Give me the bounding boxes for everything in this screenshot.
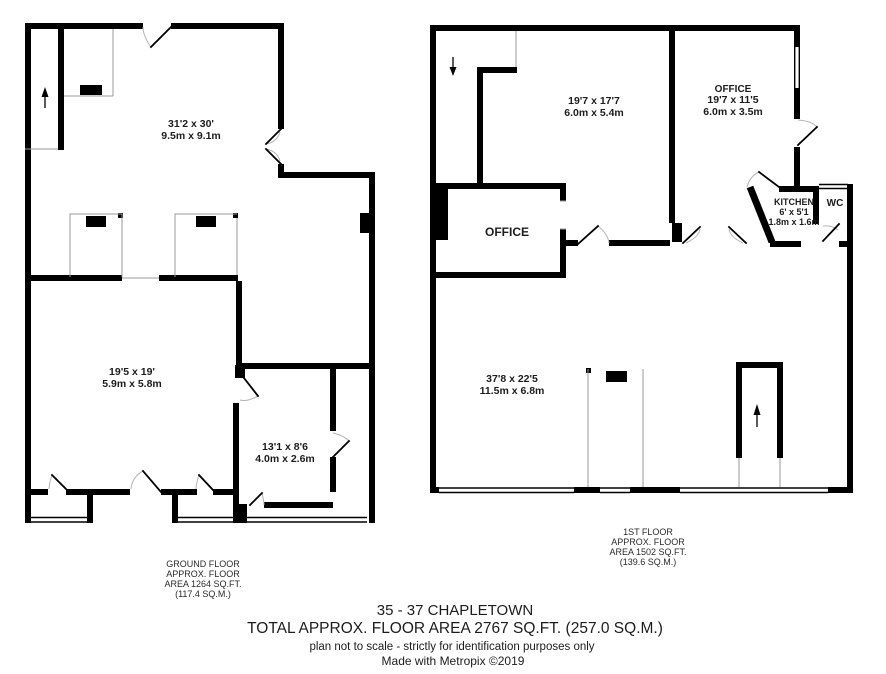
ground-floor-plan [25,23,375,523]
ground-floor-thin-lines [25,29,237,278]
room-dims-ft: 19'7 x 11'5 [703,95,763,107]
room-label-first-office-right: OFFICE 19'7 x 11'5 6.0m x 3.5m [703,84,763,118]
room-label-wc: WC [827,198,844,209]
ground-floor-walls [25,23,375,523]
caption-line: 1ST FLOOR [609,527,686,537]
room-label-kitchen: KITCHEN 6' x 5'1 1.8m x 1.6m [768,197,819,227]
ground-floor-fixtures [80,85,216,227]
caption-line: (117.4 SQ.M.) [164,589,241,599]
room-dims-ft: 31'2 x 30' [161,119,221,131]
first-floor-walls [430,25,853,493]
room-name: WC [827,198,844,209]
room-dims-m: 9.5m x 9.1m [161,131,221,143]
stairwell-up-arrow-icon [754,404,761,427]
room-dims-m: 4.0m x 2.6m [255,454,315,466]
room-dims-m: 6.0m x 3.5m [703,107,763,119]
room-label-first-front: 19'7 x 17'7 6.0m x 5.4m [564,96,624,119]
stairs-down-arrow-icon [450,57,457,76]
room-dims-m: 1.8m x 1.6m [768,217,819,227]
first-floor-caption: 1ST FLOOR APPROX. FLOOR AREA 1502 SQ.FT.… [609,527,686,567]
ground-floor-door-leaves [52,26,349,505]
room-label-open-plan: 37'8 x 22'5 11.5m x 6.8m [480,374,545,397]
ground-floor-caption: GROUND FLOOR APPROX. FLOOR AREA 1264 SQ.… [164,559,241,599]
room-label-ground-main: 31'2 x 30' 9.5m x 9.1m [161,119,221,142]
room-dims-ft: 19'7 x 17'7 [564,96,624,108]
room-dims-m: 5.9m x 5.8m [102,379,162,391]
room-dims-ft: 19'5 x 19' [102,367,162,379]
credit-text: Made with Metropix ©2019 [382,655,525,668]
room-name: OFFICE [485,226,529,239]
room-name: KITCHEN [768,197,819,207]
room-dims-ft: 6' x 5'1 [768,207,819,217]
room-label-ground-side: 13'1 x 8'6 4.0m x 2.6m [255,442,315,465]
room-dims-ft: 13'1 x 8'6 [255,442,315,454]
ground-floor-door-arcs [49,27,349,505]
property-title: 35 - 37 CHAPLETOWN [377,602,533,619]
room-dims-m: 6.0m x 5.4m [564,108,624,120]
floorplan-page: 31'2 x 30' 9.5m x 9.1m 19'5 x 19' 5.9m x… [0,0,886,674]
caption-line: APPROX. FLOOR [609,537,686,547]
caption-line: GROUND FLOOR [164,559,241,569]
caption-line: AREA 1264 SQ.FT. [164,579,241,589]
caption-line: (139.6 SQ.M.) [609,557,686,567]
ground-floor-windows [31,518,367,523]
first-floor-fixtures [606,371,627,382]
stairs-up-arrow-icon [42,87,49,108]
total-floor-area: TOTAL APPROX. FLOOR AREA 2767 SQ.FT. (25… [247,620,663,638]
room-dims-m: 11.5m x 6.8m [480,386,545,398]
first-floor-plan [430,25,853,493]
room-label-ground-rear: 19'5 x 19' 5.9m x 5.8m [102,367,162,390]
disclaimer-text: plan not to scale - strictly for identif… [309,641,594,654]
room-label-office-box: OFFICE [485,226,529,239]
caption-line: AREA 1502 SQ.FT. [609,547,686,557]
room-dims-ft: 37'8 x 22'5 [480,374,545,386]
caption-line: APPROX. FLOOR [164,569,241,579]
